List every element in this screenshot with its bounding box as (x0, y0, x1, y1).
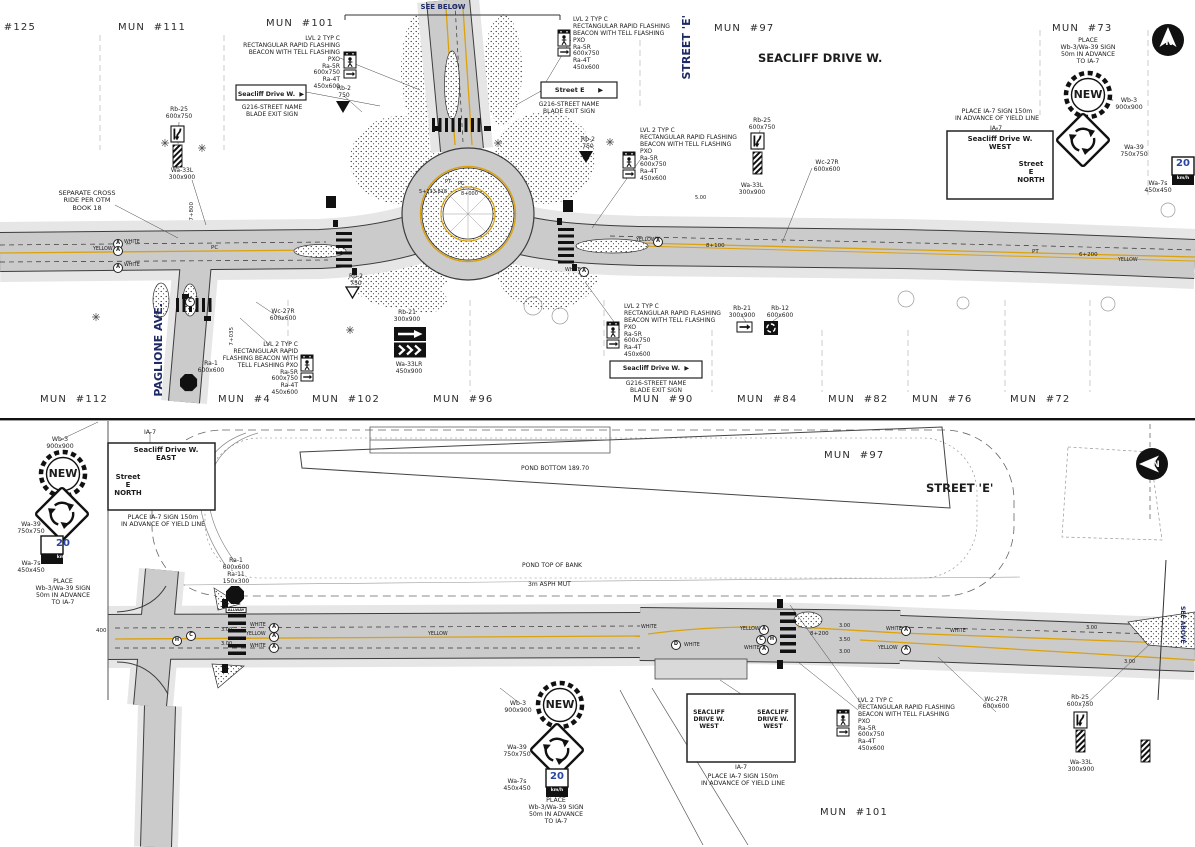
sta-8200: 8+200 (810, 631, 829, 637)
mun-101: MUN #101 (266, 18, 334, 30)
mun-82: MUN #82 (828, 394, 889, 406)
place-ia7-note-sw: PLACE IA-7 SIGN 150m IN ADVANCE OF YIELD… (121, 514, 205, 528)
sign-wa39-bc: Wa-39 750x750 (503, 744, 530, 758)
rrfb-note-6: LVL 2 TYP C RECTANGULAR RAPID FLASHING B… (858, 698, 955, 753)
sign-rb25-b: Rb-25 600x750 (1067, 695, 1093, 709)
sta-eq-1: 5+133.818 (419, 190, 447, 196)
sign-wa39-ne: Wa-39 750x750 (1120, 144, 1147, 158)
mun-125: MUN #125 (0, 22, 36, 34)
exit-sign-2-caption: G216-STREET NAME BLADE EXIT SIGN (539, 102, 600, 116)
sta-8100: 8+100 (706, 243, 725, 249)
roundabout (402, 148, 534, 280)
pond-top-of-bank: POND TOP OF BANK (522, 563, 582, 570)
see-below: SEE BELOW (420, 3, 465, 11)
place-ia7-note-bc: PLACE IA-7 SIGN 150m IN ADVANCE OF YIELD… (701, 773, 785, 787)
sign-rb21-1: Rb-21 300x900 (394, 310, 420, 324)
dim-400: 400 (96, 628, 107, 634)
mark-white-b2: WHITE (250, 644, 266, 650)
rrfb-note-3: LVL 2 TYP C RECTANGULAR RAPID FLASHING B… (640, 128, 737, 183)
hazard-post-icon (1076, 730, 1085, 752)
place-wb3-note-sw: PLACE Wb-3/Wa-39 SIGN 50m IN ADVANCE TO … (35, 578, 90, 607)
ia7-ne-side: Street E NORTH (1017, 160, 1045, 184)
exit-sign-3-text: Seacliff Drive W. ▶ (623, 365, 689, 372)
ia7-label-ne: IA-7 (990, 125, 1002, 132)
ped-crossover-tab-icon (301, 373, 313, 381)
ped-crossover-tab-icon (837, 728, 849, 736)
mark-yellow-e2: YELLOW (1118, 258, 1138, 264)
lane-marker-D: D (671, 640, 681, 650)
new-bc-text: NEW (546, 699, 575, 712)
dim-b5: 3.00 (839, 650, 850, 656)
mark-yellow-b2: YELLOW (428, 632, 448, 638)
mun-84: MUN #84 (737, 394, 798, 406)
mark-white-b7: WHITE (950, 629, 966, 635)
lane-marker-A: A (113, 263, 123, 273)
sign-wb3-ne: Wb-3 900x900 (1115, 97, 1142, 111)
dim-b2: 3.00 (221, 642, 232, 648)
keep-right-icon (751, 133, 764, 149)
hazard-post-icon (753, 152, 762, 174)
sign-rb2-3: Rb-2 750 (581, 137, 595, 151)
ia7-label-bc: IA-7 (735, 764, 747, 771)
stop-icon (226, 586, 244, 604)
sign-wc27r-2: Wc-27R 600x600 (814, 160, 840, 174)
panel-divider (0, 418, 1195, 420)
sta-7800: 7+800 (189, 202, 195, 221)
bottom-plan (35, 421, 1195, 847)
speed-sw-kmh: km/h (57, 555, 70, 560)
mun-76: MUN #76 (912, 394, 973, 406)
dim-b6: 3.00 (1086, 626, 1097, 632)
sign-wa7s-sw: Wa-7s 450x450 (17, 560, 44, 574)
sign-rb2-2: Rb-2 750 (349, 274, 363, 288)
speed-ne-kmh: km/h (1177, 176, 1190, 181)
place-wb3-note-bc: PLACE Wb-3/Wa-39 SIGN 50m IN ADVANCE TO … (528, 797, 583, 826)
hazard-post-icon (1141, 740, 1150, 762)
sta-eq-2: 8+000 (461, 192, 478, 198)
mun-73: MUN #73 (1052, 23, 1113, 35)
ped-crossover-tab-icon (344, 70, 356, 78)
sign-rb21-2: Rb-21 300x900 (729, 306, 755, 320)
dim-b7: 3.00 (1124, 660, 1135, 666)
pc-west: PC (211, 245, 218, 251)
separate-cross-note: SEPARATE CROSS RIDE PER OTM BOOK 18 (59, 190, 116, 212)
mark-white-b1: WHITE (250, 623, 266, 629)
rb21-arrow-icon (737, 322, 752, 332)
see-above: SEE ABOVE (1178, 606, 1185, 644)
sign-wa33l-b: Wa-33L 300x900 (1068, 760, 1094, 774)
pt-east: PT (1032, 249, 1039, 255)
ia7-ne-title: Seacliff Drive W. WEST (968, 135, 1033, 151)
ped-crossover-icon (623, 152, 635, 168)
rrfb-note-2: LVL 2 TYP C RECTANGULAR RAPID FLASHING B… (573, 17, 670, 72)
mun-101-b: MUN #101 (820, 807, 888, 819)
rb12-icon (764, 321, 778, 335)
speed-bc-20: 20 (550, 771, 564, 783)
keep-right-icon (1074, 712, 1087, 728)
sign-wa7s-bc: Wa-7s 450x450 (503, 778, 530, 792)
lane-marker-C: C (186, 631, 196, 641)
pond (152, 427, 1020, 596)
ped-crossover-tab-icon (623, 170, 635, 178)
bus-pad (655, 659, 747, 679)
lane-marker-A: A (759, 645, 769, 655)
dim-b1: 3.00 (221, 628, 232, 634)
sign-wa39-sw: Wa-39 750x750 (17, 521, 44, 535)
paglione-ave: PAGLIONE AVE. (153, 303, 166, 397)
pond-bottom: POND BOTTOM 189.70 (521, 466, 589, 473)
ped-crossover-tab-icon (607, 340, 619, 348)
place-ia7-note-ne: PLACE IA-7 SIGN 150m IN ADVANCE OF YIELD… (955, 108, 1039, 122)
ped-crossover-icon (344, 52, 356, 68)
ped-crossover-tab-icon (558, 48, 570, 56)
rrfb-note-4: LVL 2 TYP C RECTANGULAR RAPID FLASHING B… (223, 342, 298, 397)
mark-white-b4: WHITE (684, 643, 700, 649)
street-e-vertical: STREET 'E' (681, 15, 694, 80)
ia7-bc-left: SEACLIFF DRIVE W. WEST (693, 710, 725, 731)
asph-mut: 3m ASPH MUT (528, 582, 571, 589)
ped-crossover-icon (558, 30, 570, 46)
lane-marker-A: A (269, 632, 279, 642)
mun-96: MUN #96 (433, 394, 494, 406)
lane-marker-A: A (653, 237, 663, 247)
street-e-b: STREET 'E' (926, 482, 993, 495)
mun-111: MUN #111 (118, 22, 186, 34)
mark-white-w1: WHITE (124, 240, 140, 246)
keep-right-icon (171, 126, 184, 142)
rrfb-note-1: LVL 2 TYP C RECTANGULAR RAPID FLASHING B… (243, 36, 340, 91)
speed-bc-kmh: km/h (551, 788, 564, 793)
dim-b3: 3.00 (839, 624, 850, 630)
ia7-sw-side: Street E NORTH (114, 473, 142, 497)
sign-wc27r-1: Wc-27R 600x600 (270, 309, 296, 323)
sign-ra1: Ra-1 600x600 (198, 361, 224, 375)
ra1-note: Ra-1 600x600 Ra-11 150x300 (223, 558, 249, 586)
dim-b4: 3.50 (839, 638, 850, 644)
ped-crossover-icon (837, 710, 849, 726)
roundabout-diamond-icon (1056, 113, 1110, 167)
place-wb3-note-ne: PLACE Wb-3/Wa-39 SIGN 50m IN ADVANCE TO … (1060, 37, 1115, 66)
mun-112: MUN #112 (40, 394, 108, 406)
pt-center: PT (445, 180, 451, 186)
plan-sheet: MUN #125MUN #111MUN #101MUN #97MUN #73MU… (0, 0, 1195, 847)
speed-sw-20: 20 (56, 538, 70, 550)
lane-marker-H: H (172, 636, 182, 646)
ped-crossover-icon (607, 322, 619, 338)
mark-white-b3: WHITE (641, 625, 657, 631)
seacliff-drive-w-title: SEACLIFF DRIVE W. (758, 52, 882, 65)
exit-sign-2-text: Street E ▶ (555, 87, 603, 94)
ia7-bc-right: SEACLIFF DRIVE W. WEST (757, 710, 789, 731)
north-n-top: N (1165, 38, 1173, 48)
mun-97: MUN #97 (714, 23, 775, 35)
north-n-bottom: N (1152, 460, 1160, 470)
exit-sign-1-caption: G216-STREET NAME BLADE EXIT SIGN (242, 105, 303, 119)
sign-wb3-bc: Wb-3 900x900 (504, 700, 531, 714)
lane-marker-C: C (756, 635, 766, 645)
mark-white-b5: WHITE (744, 646, 760, 652)
sign-wa33lr: Wa-33LR 450x900 (396, 362, 423, 376)
speed-ne-20: 20 (1176, 158, 1190, 170)
ia7-sw-title: Seacliff Drive W. EAST (134, 446, 199, 462)
chevron-icon (394, 327, 426, 358)
mun-90: MUN #90 (633, 394, 694, 406)
rrfb-note-5: LVL 2 TYP C RECTANGULAR RAPID FLASHING B… (624, 304, 721, 359)
yield-icon (336, 101, 350, 113)
sign-rb2-1: Rb-2 750 (337, 86, 351, 100)
sign-wa33l-west: Wa-33L 300x900 (169, 168, 195, 182)
exit-sign-3-caption: G216-STREET NAME BLADE EXIT SIGN (626, 381, 687, 395)
sign-wb3-sw: Wb-3 900x900 (46, 436, 73, 450)
lane-marker-A: A (901, 626, 911, 636)
lane-marker-A: A (113, 246, 123, 256)
mun-72: MUN #72 (1010, 394, 1071, 406)
sign-rb25-west: Rb-25 600x750 (166, 107, 192, 121)
roadway-bottom (108, 570, 1195, 847)
lane-marker-A: A (579, 267, 589, 277)
pc-center: PC (458, 182, 465, 188)
lane-marker-C: C (185, 297, 195, 307)
new-sw-text: NEW (49, 468, 78, 481)
dim-500: 5.00 (695, 196, 706, 202)
ia7-label-sw: IA-7 (144, 429, 156, 436)
lane-marker-A: A (759, 625, 769, 635)
sign-wc27r-b: Wc-27R 600x600 (983, 697, 1009, 711)
mark-white-w2: WHITE (124, 263, 140, 269)
sta-6200: 6+200 (1079, 252, 1098, 258)
new-ne-text: NEW (1074, 89, 1103, 102)
mark-yellow-b4: YELLOW (878, 646, 898, 652)
sign-rb25-east: Rb-25 600x750 (749, 118, 775, 132)
lane-marker-A: A (901, 645, 911, 655)
mark-yellow-b3: YELLOW (740, 627, 760, 633)
stop-icon (180, 374, 197, 391)
sign-wa7s-ne: Wa-7s 450x450 (1144, 180, 1171, 194)
mun-102: MUN #102 (312, 394, 380, 406)
mark-yellow-b1: YELLOW (246, 632, 266, 638)
plan-drawing (0, 0, 1195, 847)
mark-yellow-w1: YELLOW (93, 247, 113, 253)
sign-wa33l-east: Wa-33L 300x900 (739, 183, 765, 197)
sign-rb12: Rb-12 600x600 (767, 306, 793, 320)
mark-white-b6: WHITE (886, 627, 902, 633)
lane-marker-H: H (767, 635, 777, 645)
mun-97-b: MUN #97 (824, 450, 885, 462)
ped-crossover-icon (301, 355, 313, 371)
lane-marker-A: A (269, 643, 279, 653)
exit-sign-1-text: Seacliff Drive W. ▶ (238, 91, 304, 98)
allway-tab: ALLWAY (226, 607, 247, 613)
hazard-post-icon (173, 145, 182, 167)
sta-7035: 7+035 (229, 327, 235, 346)
